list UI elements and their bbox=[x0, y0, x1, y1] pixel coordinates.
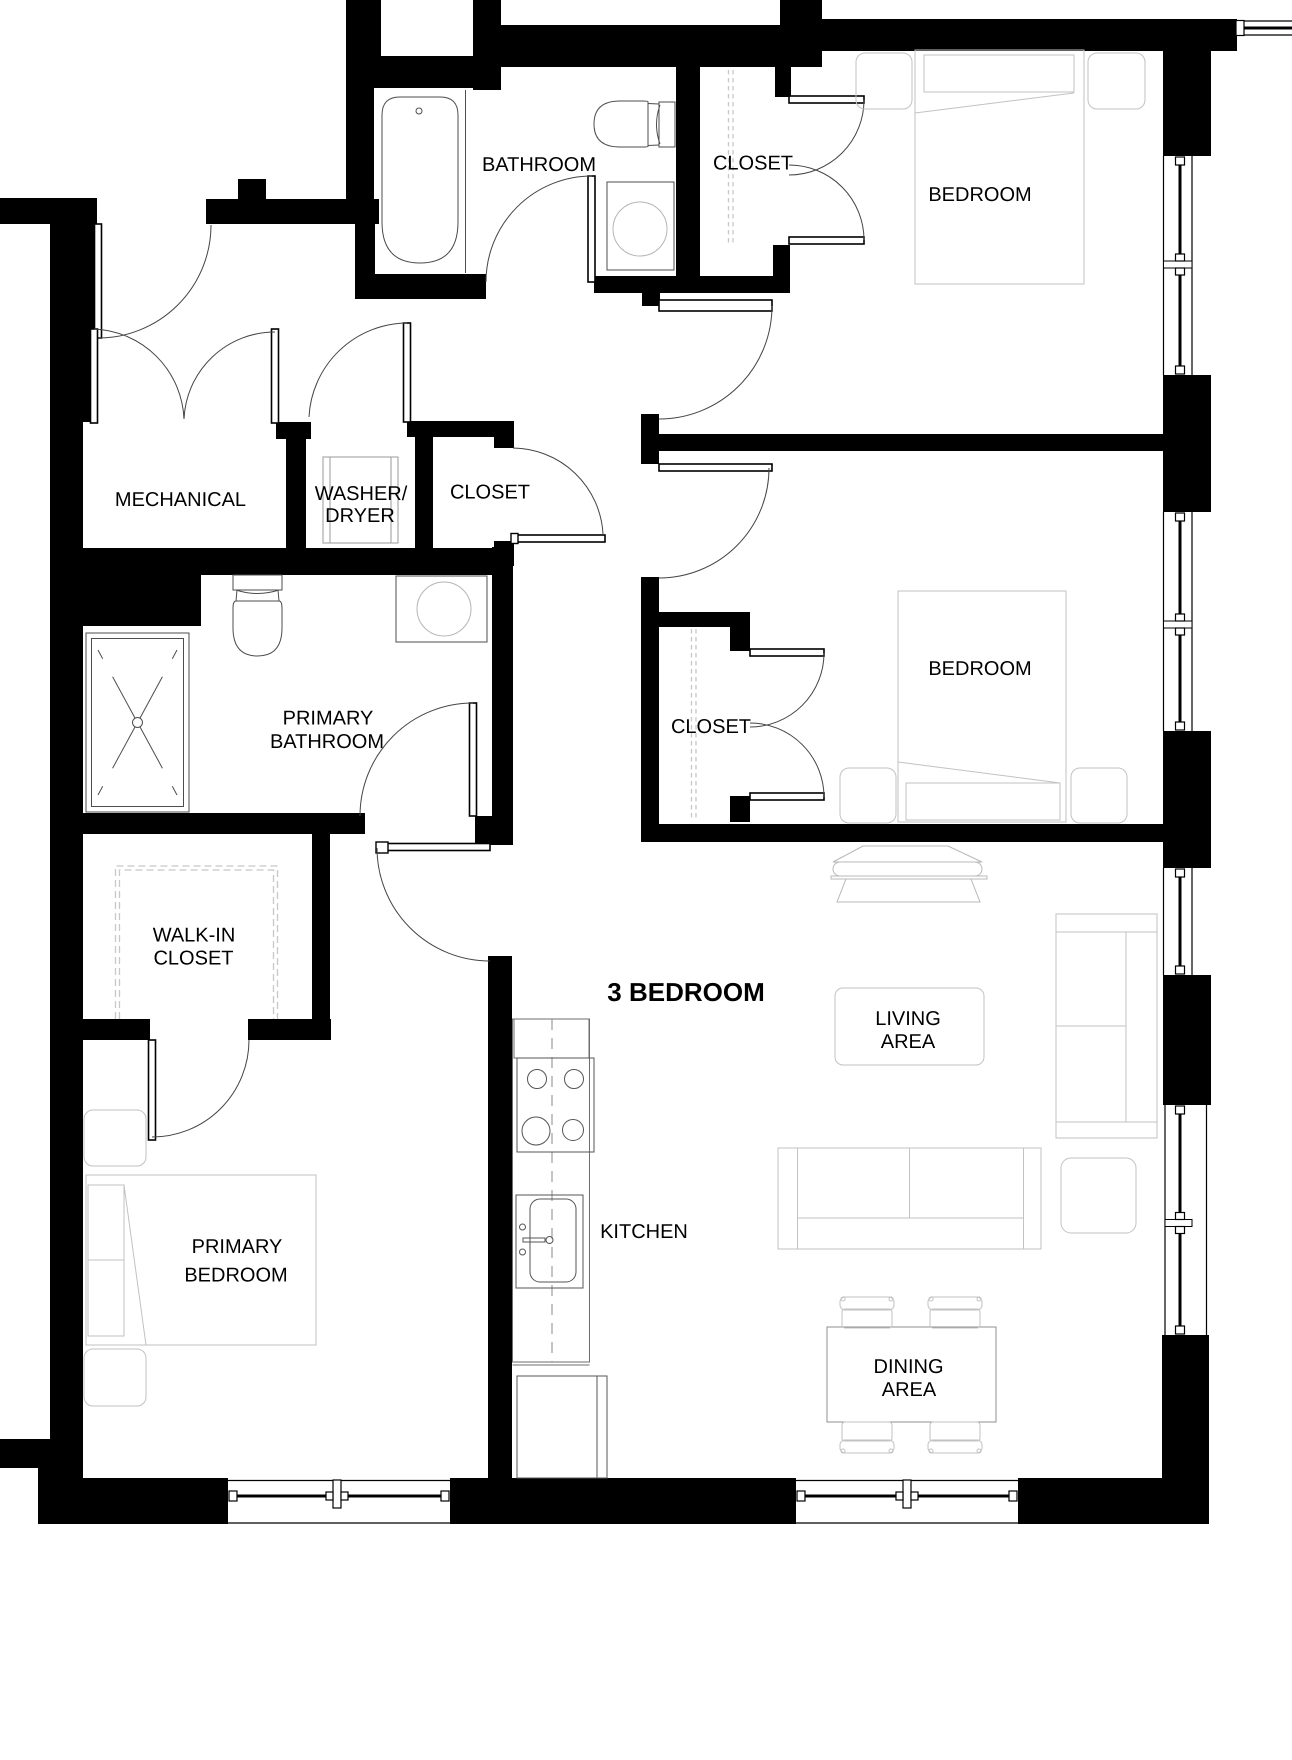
svg-text:KITCHEN: KITCHEN bbox=[600, 1221, 688, 1243]
svg-text:BEDROOM: BEDROOM bbox=[928, 658, 1031, 680]
svg-text:AREA: AREA bbox=[882, 1379, 937, 1401]
svg-text:BATHROOM: BATHROOM bbox=[270, 731, 384, 753]
svg-text:WASHER/: WASHER/ bbox=[315, 483, 408, 505]
svg-text:WALK-IN: WALK-IN bbox=[153, 925, 236, 947]
svg-text:CLOSET: CLOSET bbox=[671, 716, 751, 738]
svg-text:CLOSET: CLOSET bbox=[450, 482, 530, 504]
svg-text:CLOSET: CLOSET bbox=[713, 153, 793, 175]
svg-text:BEDROOM: BEDROOM bbox=[184, 1265, 287, 1287]
svg-text:AREA: AREA bbox=[881, 1031, 936, 1053]
svg-text:BEDROOM: BEDROOM bbox=[928, 184, 1031, 206]
svg-text:DRYER: DRYER bbox=[325, 505, 395, 527]
svg-text:DINING: DINING bbox=[874, 1356, 944, 1378]
svg-text:MECHANICAL: MECHANICAL bbox=[115, 489, 246, 511]
svg-text:LIVING: LIVING bbox=[875, 1008, 941, 1030]
svg-text:PRIMARY: PRIMARY bbox=[283, 708, 374, 730]
svg-text:3 BEDROOM: 3 BEDROOM bbox=[607, 977, 764, 1007]
svg-text:CLOSET: CLOSET bbox=[153, 948, 233, 970]
svg-text:BATHROOM: BATHROOM bbox=[482, 154, 596, 176]
svg-text:PRIMARY: PRIMARY bbox=[192, 1236, 283, 1258]
